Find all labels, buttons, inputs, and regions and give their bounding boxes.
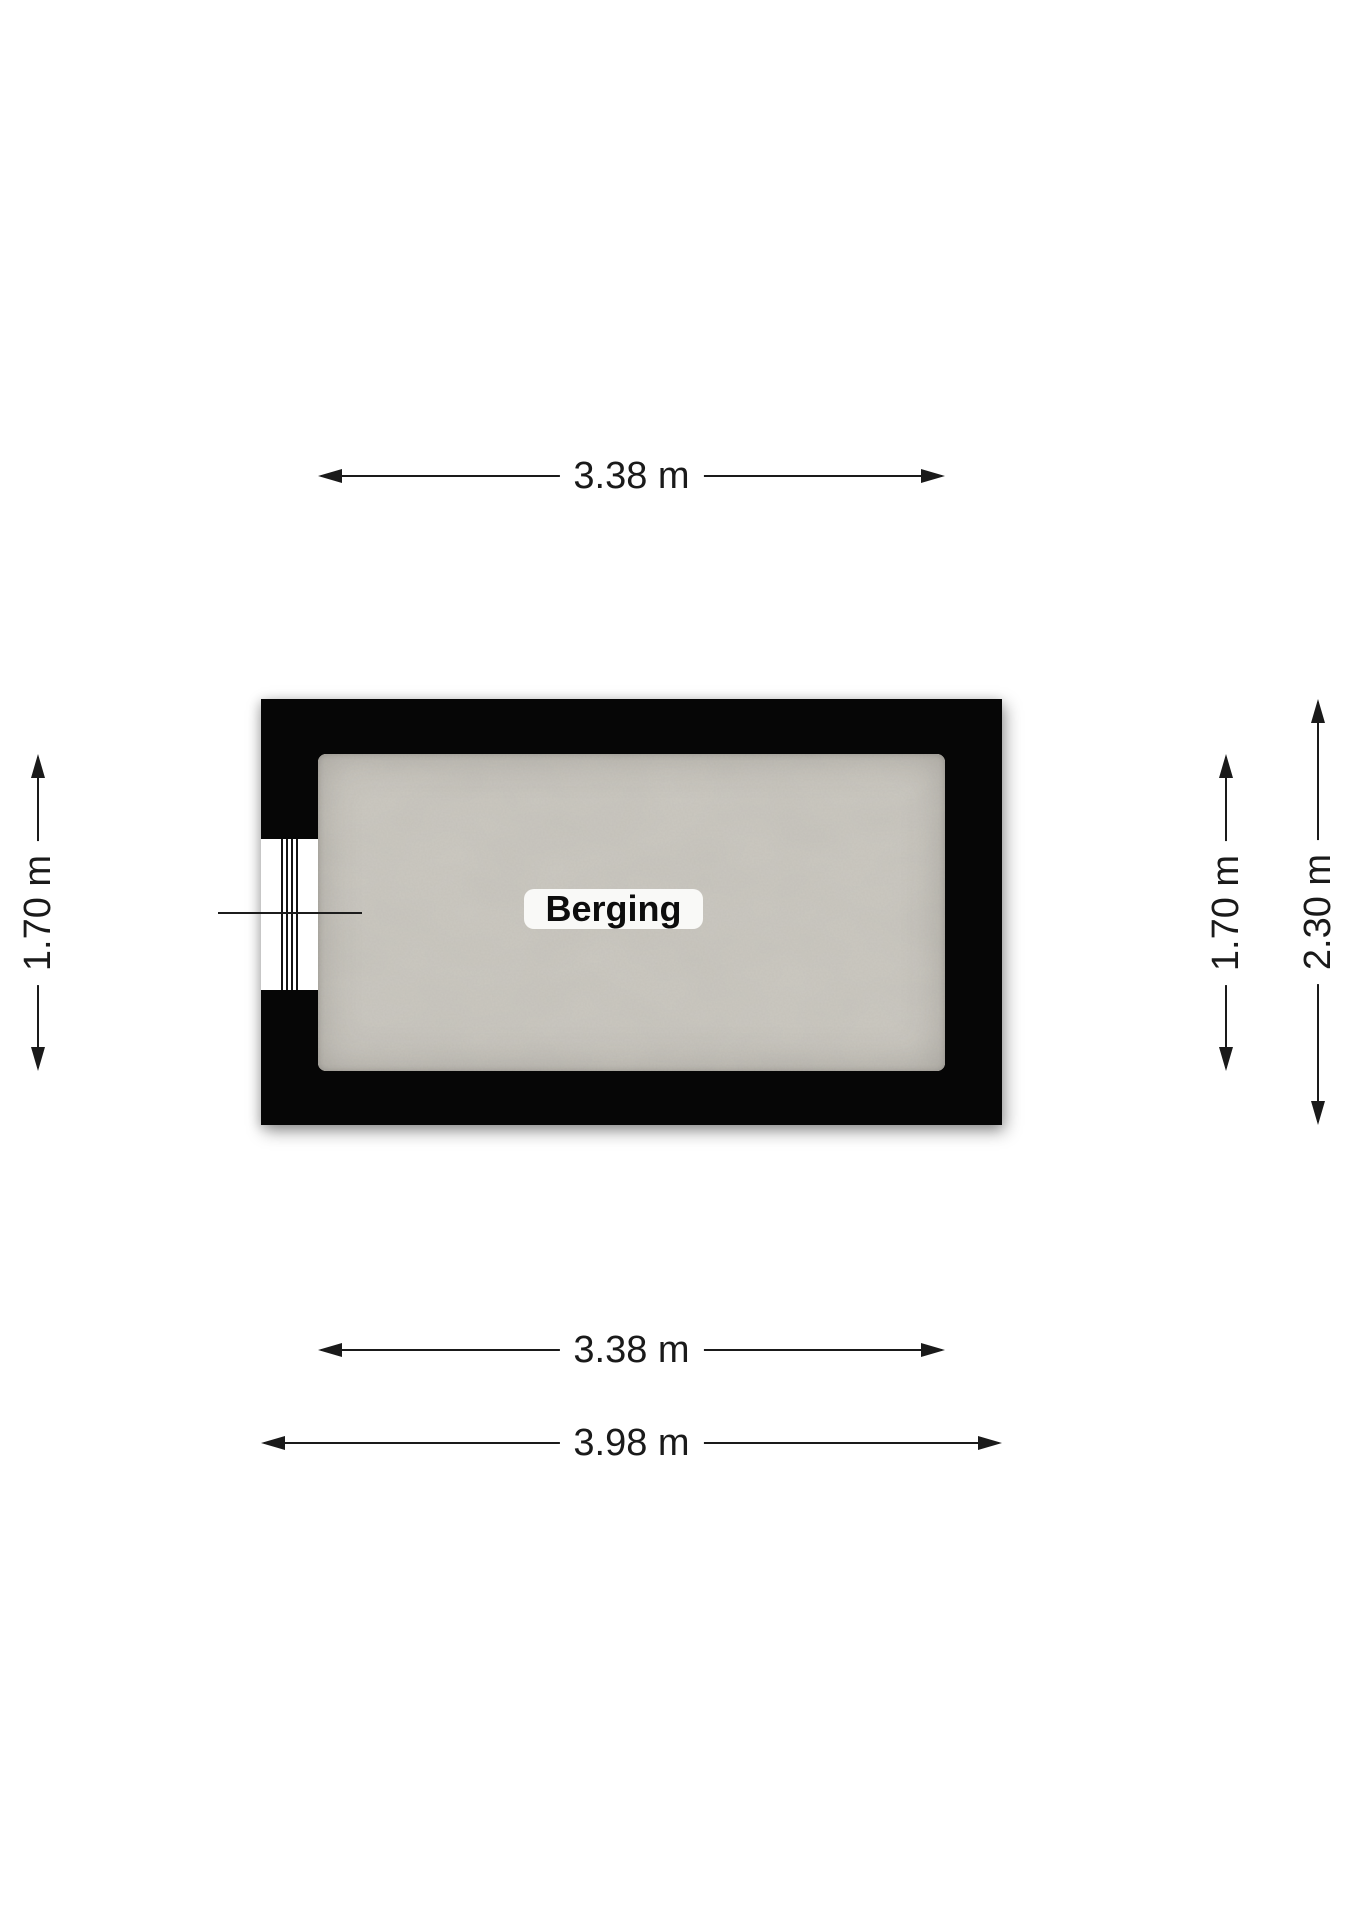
floorplan-canvas: 3.38 m 1.70 m 1.70 m 2.30 m (0, 0, 1358, 1920)
arrowhead-right-icon (978, 1436, 1002, 1450)
arrowhead-down-icon (1311, 1101, 1325, 1125)
dimension-top-inner-width: 3.38 m (318, 456, 945, 496)
window-frame-line (296, 839, 298, 990)
arrowhead-right-icon (921, 1343, 945, 1357)
window-frame-line (286, 839, 288, 990)
arrowhead-up-icon (1219, 754, 1233, 778)
window-opening (261, 839, 318, 990)
dimension-right-outer-height: 2.30 m (1298, 699, 1338, 1125)
arrowhead-right-icon (921, 469, 945, 483)
dimension-left-inner-height: 1.70 m (18, 754, 58, 1071)
room-name-badge: Berging (524, 889, 703, 929)
arrowhead-left-icon (261, 1436, 285, 1450)
dimension-label: 1.70 m (17, 840, 59, 984)
dimension-label: 3.38 m (559, 1329, 703, 1371)
window-frame-line (281, 839, 283, 990)
section-reference-line (218, 912, 362, 914)
dimension-bottom-inner-width: 3.38 m (318, 1330, 945, 1370)
dimension-bottom-outer-width: 3.98 m (261, 1423, 1002, 1463)
dimension-label: 3.98 m (559, 1422, 703, 1464)
arrowhead-down-icon (1219, 1047, 1233, 1071)
dimension-label: 2.30 m (1297, 840, 1339, 984)
arrowhead-up-icon (31, 754, 45, 778)
arrowhead-down-icon (31, 1047, 45, 1071)
arrowhead-left-icon (318, 469, 342, 483)
arrowhead-up-icon (1311, 699, 1325, 723)
dimension-label: 1.70 m (1205, 840, 1247, 984)
window-frame-line (291, 839, 293, 990)
dimension-label: 3.38 m (559, 455, 703, 497)
arrowhead-left-icon (318, 1343, 342, 1357)
room-name: Berging (545, 888, 681, 930)
dimension-right-inner-height: 1.70 m (1206, 754, 1246, 1071)
